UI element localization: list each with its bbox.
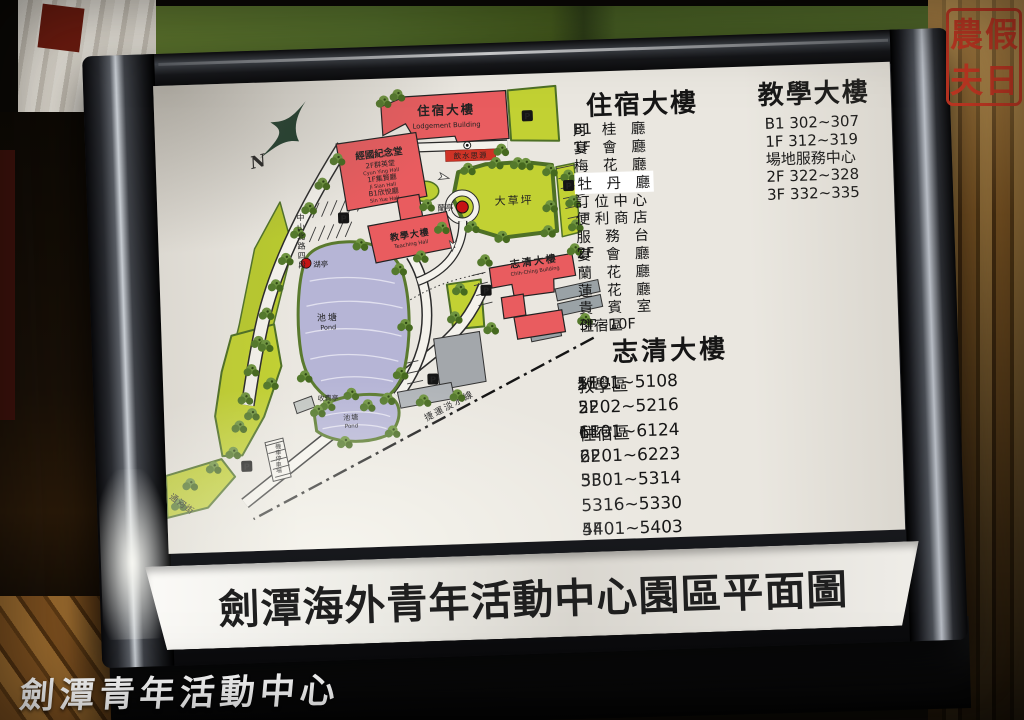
page-title: 劍潭海外青年活動中心園區平面圖 — [217, 555, 849, 636]
background-red-strip — [0, 150, 15, 420]
stamp-char: 假 — [985, 18, 1018, 51]
photo-watermark: 劍潭青年活動中心 — [17, 662, 342, 719]
stamp-char: 日 — [985, 64, 1018, 97]
map-signboard: P — [82, 28, 968, 668]
background-red-object — [37, 4, 84, 53]
red-seal-stamp: 農 假 夫 日 — [946, 8, 1022, 106]
stamp-char: 農 — [950, 18, 983, 51]
signboard-face: P — [153, 62, 905, 554]
stamp-char: 夫 — [950, 64, 983, 97]
face-lighting-overlay — [153, 62, 905, 554]
photo-of-map-signboard: P — [0, 0, 1024, 720]
